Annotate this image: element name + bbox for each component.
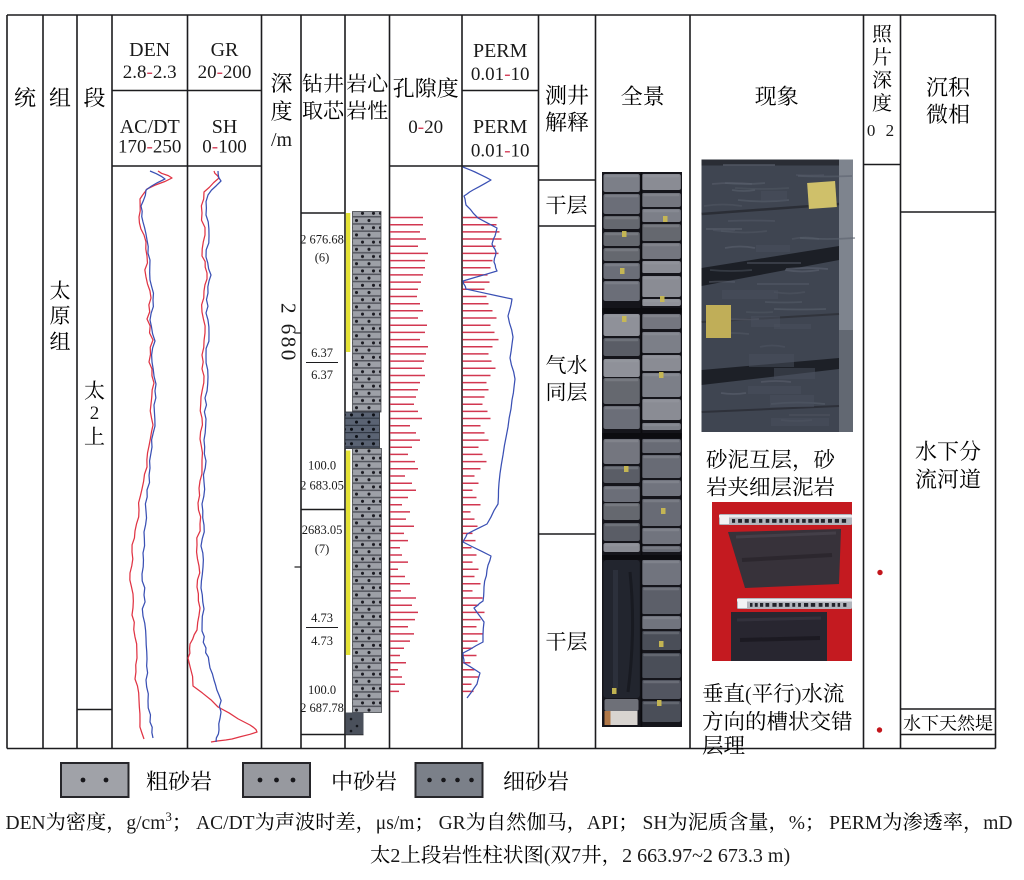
svg-text:/m: /m xyxy=(271,129,293,151)
svg-text:(6): (6) xyxy=(315,251,330,265)
svg-text:AC/DT: AC/DT xyxy=(196,813,255,834)
svg-text:PERM: PERM xyxy=(829,813,882,834)
svg-text:μs/m: μs/m xyxy=(376,813,415,834)
svg-text:2 687.78: 2 687.78 xyxy=(300,701,344,715)
svg-text:SH: SH xyxy=(212,116,238,138)
svg-text:20: 20 xyxy=(424,117,443,138)
svg-text:7: 7 xyxy=(571,845,581,867)
svg-text:GR: GR xyxy=(211,39,239,61)
svg-text:170: 170 xyxy=(118,137,147,158)
svg-text:(: ( xyxy=(544,845,551,867)
svg-text:(7): (7) xyxy=(315,542,330,556)
svg-text:2 676.68: 2 676.68 xyxy=(300,233,344,247)
svg-text:0 2: 0 2 xyxy=(867,121,897,140)
svg-text:0.01: 0.01 xyxy=(471,64,504,85)
svg-text:mD: mD xyxy=(983,813,1012,834)
svg-text:(: ( xyxy=(745,684,752,706)
svg-text:20: 20 xyxy=(198,62,217,83)
svg-text:SH: SH xyxy=(643,813,668,834)
svg-text:-: - xyxy=(147,62,153,83)
svg-text:): ) xyxy=(795,684,802,706)
svg-text:2.3: 2.3 xyxy=(153,62,177,83)
svg-text:0.01: 0.01 xyxy=(471,141,504,162)
svg-text:0: 0 xyxy=(408,117,418,138)
svg-text:%: % xyxy=(789,813,805,834)
svg-text:2.8: 2.8 xyxy=(123,62,147,83)
svg-text:DEN: DEN xyxy=(6,813,46,834)
svg-text:100: 100 xyxy=(218,137,247,158)
svg-text:DEN: DEN xyxy=(129,39,170,61)
svg-text:3: 3 xyxy=(165,809,172,824)
svg-text:-: - xyxy=(147,137,153,158)
svg-text:100.0: 100.0 xyxy=(308,459,336,473)
svg-text:250: 250 xyxy=(153,137,182,158)
svg-text:2: 2 xyxy=(90,403,100,424)
svg-text:6.37: 6.37 xyxy=(311,368,333,382)
svg-text:GR: GR xyxy=(439,813,466,834)
svg-text:100.0: 100.0 xyxy=(308,683,336,697)
svg-text:6.37: 6.37 xyxy=(311,346,333,360)
svg-text:4.73: 4.73 xyxy=(311,611,333,625)
svg-text:-: - xyxy=(212,137,218,158)
svg-text:2683.05: 2683.05 xyxy=(302,523,343,537)
svg-text:API: API xyxy=(587,813,618,834)
svg-text:200: 200 xyxy=(223,62,252,83)
svg-text:2 683.05: 2 683.05 xyxy=(300,479,344,493)
svg-text:10: 10 xyxy=(511,141,530,162)
svg-text:g/cm: g/cm xyxy=(126,813,165,834)
svg-text:4.73: 4.73 xyxy=(311,634,333,648)
svg-text:0: 0 xyxy=(202,137,212,158)
svg-text:PERM: PERM xyxy=(473,116,528,138)
svg-text:2 663.97~2 673.3 m): 2 663.97~2 673.3 m) xyxy=(622,845,790,867)
svg-text:PERM: PERM xyxy=(473,40,528,62)
svg-text:10: 10 xyxy=(511,64,530,85)
svg-text:2: 2 xyxy=(390,845,400,867)
svg-text:AC/DT: AC/DT xyxy=(120,116,180,138)
